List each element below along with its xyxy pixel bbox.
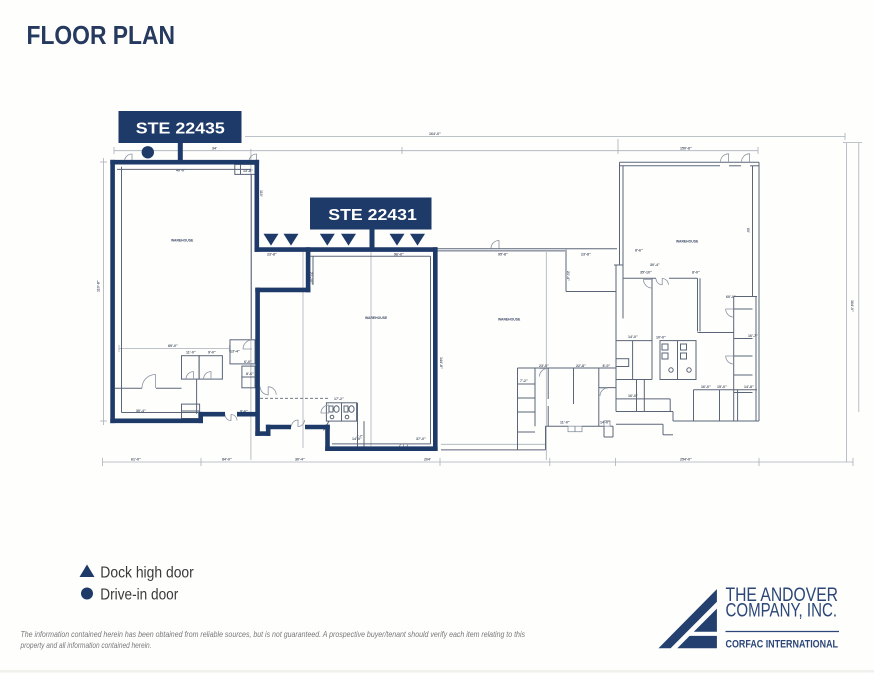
- svg-text:WAREHOUSE: WAREHOUSE: [676, 240, 699, 244]
- svg-text:254'-0": 254'-0": [680, 458, 692, 462]
- svg-text:30'-4": 30'-4": [650, 263, 660, 267]
- svg-text:23'-8": 23'-8": [267, 253, 277, 257]
- svg-text:COMPANY, INC.: COMPANY, INC.: [726, 601, 838, 622]
- svg-text:150'-8": 150'-8": [680, 147, 692, 151]
- svg-text:8'-6": 8'-6": [635, 249, 643, 253]
- svg-text:8'-0": 8'-0": [692, 271, 700, 275]
- svg-text:22'-8": 22'-8": [576, 364, 586, 368]
- svg-text:30'-4": 30'-4": [295, 458, 305, 462]
- svg-text:144'-8": 144'-8": [439, 357, 443, 369]
- svg-text:15'-0": 15'-0": [717, 385, 727, 389]
- svg-text:CORFAC INTERNATIONAL: CORFAC INTERNATIONAL: [726, 639, 839, 651]
- svg-text:The information contained here: The information contained herein has bee…: [21, 630, 526, 639]
- svg-text:Dock high door: Dock high door: [100, 565, 194, 582]
- svg-text:WAREHOUSE: WAREHOUSE: [171, 239, 194, 243]
- svg-text:17'-2": 17'-2": [334, 397, 344, 401]
- svg-text:23'-0": 23'-0": [539, 364, 549, 368]
- svg-text:WAREHOUSE: WAREHOUSE: [365, 316, 388, 320]
- svg-text:9'-0": 9'-0": [208, 351, 216, 355]
- svg-text:95'-8": 95'-8": [498, 253, 508, 257]
- svg-text:Drive-in door: Drive-in door: [100, 587, 178, 604]
- svg-text:13'-4": 13'-4": [230, 350, 240, 354]
- svg-text:10'-0": 10'-0": [656, 336, 666, 340]
- svg-text:11'-0": 11'-0": [560, 421, 570, 425]
- svg-text:16'-0": 16'-0": [701, 385, 711, 389]
- svg-text:61'-0": 61'-0": [131, 458, 141, 462]
- svg-text:110': 110': [259, 190, 263, 197]
- svg-text:89'-0": 89'-0": [168, 344, 178, 348]
- svg-text:37'-0": 37'-0": [416, 437, 426, 441]
- svg-text:WAREHOUSE: WAREHOUSE: [498, 318, 521, 322]
- svg-text:16'-7": 16'-7": [748, 334, 758, 338]
- svg-text:STE 22435: STE 22435: [136, 121, 225, 138]
- svg-text:35'-10": 35'-10": [640, 271, 652, 275]
- svg-text:164'-0": 164'-0": [429, 132, 441, 136]
- svg-text:34': 34': [212, 146, 217, 150]
- svg-text:STE 22431: STE 22431: [328, 207, 417, 224]
- svg-text:14'-0": 14'-0": [628, 335, 638, 339]
- svg-text:23'-8": 23'-8": [581, 253, 591, 257]
- svg-text:204': 204': [424, 458, 431, 462]
- svg-text:84'-0": 84'-0": [222, 458, 232, 462]
- svg-text:11'-0": 11'-0": [186, 351, 196, 355]
- svg-text:14'-8": 14'-8": [744, 385, 754, 389]
- svg-text:164'-0": 164'-0": [850, 300, 854, 312]
- svg-text:21'-4": 21'-4": [566, 271, 570, 281]
- svg-text:FLOOR PLAN: FLOOR PLAN: [27, 20, 176, 50]
- svg-text:property and all information c: property and all information contained h…: [20, 641, 152, 650]
- svg-text:7'-2": 7'-2": [520, 379, 528, 383]
- svg-text:8'-0": 8'-0": [603, 364, 611, 368]
- svg-text:60': 60': [746, 228, 750, 233]
- svg-text:110'-8": 110'-8": [97, 280, 101, 292]
- svg-text:8'-6": 8'-6": [246, 372, 254, 376]
